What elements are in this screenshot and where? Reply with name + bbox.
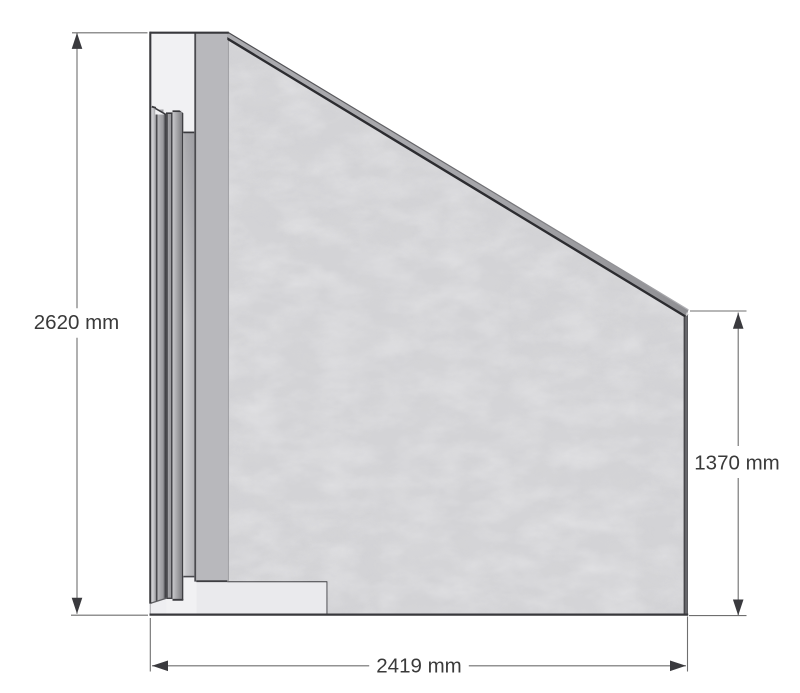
svg-text:1370 mm: 1370 mm — [694, 452, 779, 475]
svg-text:2419 mm: 2419 mm — [376, 654, 461, 677]
svg-text:2620 mm: 2620 mm — [34, 311, 119, 334]
